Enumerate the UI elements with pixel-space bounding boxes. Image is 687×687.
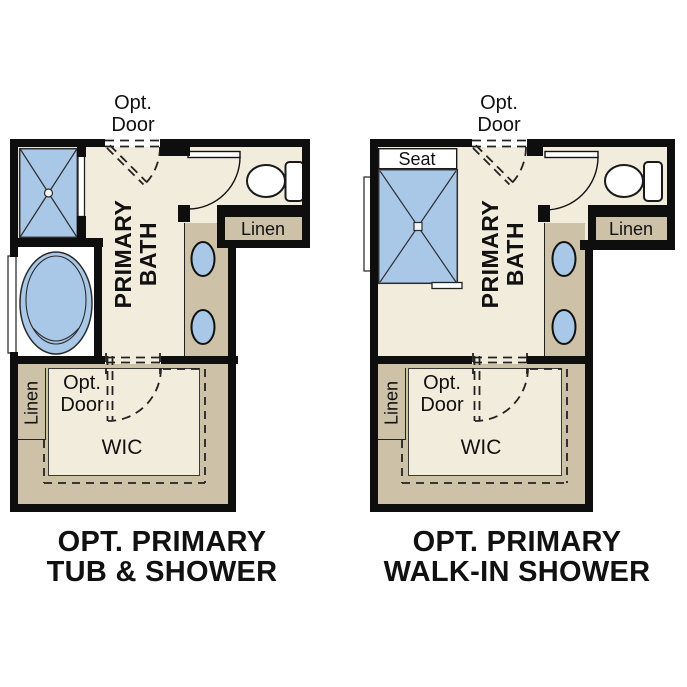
door-swing [188, 152, 240, 210]
plan1-top-wall-left [10, 139, 105, 147]
plan1-opt-door-top-label: Opt. Door [111, 92, 154, 136]
optional-door-dashed [473, 353, 528, 421]
plan2-wic-top-wall-right [527, 356, 593, 364]
plan2-primary-bath-label: PRIMARY BATH [478, 200, 528, 309]
shower-glass-panel [432, 283, 462, 289]
plan2-opt-door-wic-label: Opt. Door [420, 372, 463, 416]
window-icon [8, 256, 16, 353]
plan1-caption: OPT. PRIMARY TUB & SHOWER [47, 527, 278, 587]
plan1-left-wall-lower [10, 352, 18, 512]
toilet-icon [605, 162, 662, 201]
sink-icon [553, 242, 576, 276]
shower-icon [20, 149, 78, 238]
plan2-wic-label: WIC [461, 437, 502, 459]
plan1-primary-bath-label: PRIMARY BATH [111, 200, 161, 309]
plan2-linen-bottom-wall [580, 240, 675, 250]
plan2-wic-bottom-wall [370, 504, 593, 512]
plan1-right-wall [302, 139, 310, 248]
shower-glass-panel [78, 156, 85, 217]
plan2-opt-door-top-label: Opt. Door [477, 92, 520, 136]
plan1-tubroom-right-wall [94, 247, 102, 364]
plan1-linen-label: Linen [241, 218, 285, 240]
plan1-right-wall-lower [228, 240, 236, 512]
plan1-opt-door-wic-label: Opt. Door [60, 372, 103, 416]
optional-door-dashed [472, 141, 527, 185]
plan2-wic-top-wall-left [370, 356, 472, 364]
plan2-top-wall-right [527, 139, 675, 147]
plan2-wic-linen-label: Linen [382, 381, 403, 425]
plan2-seat-label: Seat [398, 148, 435, 170]
sink-icon [192, 310, 215, 344]
plan2-right-wall [667, 139, 675, 250]
plan1-wic-top-wall-right [161, 356, 238, 364]
shower-icon [379, 170, 458, 284]
plan1-door-stub-mid [178, 205, 190, 222]
plan2-right-wall-lower [585, 240, 593, 512]
plan1-shower-stub-bottom [77, 216, 86, 238]
plan1-wic-linen-label: Linen [22, 381, 43, 425]
optional-door-dashed [106, 353, 161, 421]
door-swing [545, 152, 598, 211]
toilet-icon [247, 162, 304, 201]
plan2-door-stub-top [527, 139, 543, 156]
plan2-caption: OPT. PRIMARY WALK-IN SHOWER [384, 527, 651, 587]
plan2-top-wall-left [370, 139, 472, 147]
plan1-wic-top-wall-left [10, 356, 105, 364]
plan2-linen-label: Linen [609, 218, 653, 240]
sink-icon [192, 242, 215, 276]
floorplan-canvas: Opt. Door PRIMARY BATH Linen Linen Opt. … [0, 0, 687, 687]
plan2-linen-top-wall [588, 205, 675, 217]
plan1-wic-bottom-wall [10, 504, 236, 512]
plan1-shower-bottom-wall [10, 238, 103, 247]
plan1-wic-label: WIC [102, 437, 143, 459]
plan2-left-wall [370, 139, 378, 512]
plan1-shower-stub-top [77, 139, 86, 157]
plan1-door-stub-top [160, 139, 190, 156]
plan2-door-stub-mid [538, 205, 550, 222]
bathtub-icon [20, 252, 92, 354]
plan1-linen-top-wall [217, 205, 310, 217]
optional-door-dashed [105, 141, 161, 185]
sink-icon [553, 310, 576, 344]
